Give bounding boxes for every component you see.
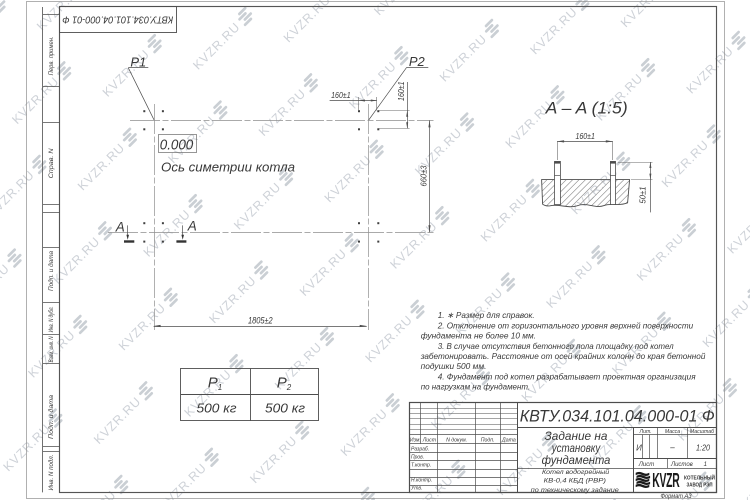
svg-text:500 кг: 500 кг (265, 401, 306, 416)
svg-text:Лит.: Лит. (639, 429, 652, 435)
svg-text:Котел водогрейный: Котел водогрейный (542, 468, 609, 476)
svg-text:A – A (1:5): A – A (1:5) (545, 99, 628, 118)
svg-text:1:20: 1:20 (696, 444, 710, 453)
svg-text:фундамента: фундамента (542, 453, 611, 467)
svg-text:KVZR: KVZR (652, 471, 680, 492)
svg-text:КВТУ.034.101.04.000-01 Ф: КВТУ.034.101.04.000-01 Ф (62, 13, 173, 24)
svg-text:660±3: 660±3 (418, 165, 428, 186)
svg-text:160±1: 160±1 (331, 90, 351, 100)
svg-text:Изм.: Изм. (410, 438, 421, 444)
svg-text:1805±2: 1805±2 (248, 315, 273, 325)
svg-text:A: A (115, 220, 125, 235)
svg-text:подушки 500 мм.: подушки 500 мм. (421, 361, 487, 371)
svg-text:0.000: 0.000 (160, 137, 194, 153)
svg-text:по техническому задание: по техническому задание (531, 486, 619, 494)
svg-text:1. ∗ Размер для справок.: 1. ∗ Размер для справок. (438, 310, 535, 320)
svg-text:Н.контр.: Н.контр. (411, 478, 432, 484)
svg-text:3. В случае отсутствия бетонно: 3. В случае отсутствия бетонного пола пл… (438, 341, 674, 351)
svg-text:фундамента не более 10 мм.: фундамента не более 10 мм. (421, 331, 536, 341)
svg-text:И: И (636, 444, 642, 453)
svg-text:Листов: Листов (670, 462, 693, 468)
svg-text:КОТЕЛЬНЫЙ: КОТЕЛЬНЫЙ (684, 474, 715, 482)
svg-text:Т.контр.: Т.контр. (411, 463, 431, 469)
svg-text:N докум.: N докум. (446, 438, 467, 444)
svg-text:Масса: Масса (665, 429, 680, 435)
svg-text:4. Фундамент под котел разраба: 4. Фундамент под котел разрабатывает про… (438, 371, 696, 381)
svg-text:1: 1 (704, 462, 707, 468)
svg-text:Подп.: Подп. (481, 438, 495, 444)
svg-text:ЗАВОД РЭП: ЗАВОД РЭП (687, 483, 713, 489)
svg-text:Разраб.: Разраб. (411, 446, 429, 452)
svg-text:Формат А3: Формат А3 (661, 493, 692, 500)
svg-text:Перв. примен.: Перв. примен. (49, 36, 55, 75)
svg-text:забетонировать. Расстояние от: забетонировать. Расстояние от осей крайн… (420, 351, 706, 361)
svg-text:50±1: 50±1 (637, 187, 647, 204)
svg-text:–: – (669, 443, 675, 452)
svg-text:P2: P2 (409, 54, 426, 69)
svg-text:Лист: Лист (422, 438, 437, 444)
svg-text:Инв. N подл.: Инв. N подл. (49, 455, 55, 491)
svg-text:Лист: Лист (638, 462, 654, 468)
svg-text:Масштаб: Масштаб (690, 429, 715, 435)
svg-text:КВТУ.034.101.04.000-01 Ф: КВТУ.034.101.04.000-01 Ф (520, 407, 715, 426)
svg-text:по нагрузкам на фундамент.: по нагрузкам на фундамент. (421, 382, 531, 392)
svg-text:160±1: 160±1 (396, 81, 406, 101)
svg-text:Инв. N дубл.: Инв. N дубл. (49, 306, 55, 332)
svg-text:P1: P1 (130, 54, 146, 69)
svg-text:КВ-0,4 КБД (РВР): КВ-0,4 КБД (РВР) (544, 477, 606, 484)
svg-text:Подп. и дата: Подп. и дата (49, 250, 55, 291)
svg-text:Утв.: Утв. (411, 486, 422, 492)
svg-text:160±1: 160±1 (575, 131, 595, 141)
svg-text:A: A (187, 219, 197, 234)
svg-text:Пров.: Пров. (411, 455, 424, 461)
svg-text:Взам. инв. N: Взам. инв. N (49, 336, 55, 362)
svg-text:2. Отклонение от горизонтально: 2. Отклонение от горизонтального уровня … (437, 320, 694, 330)
svg-text:Справ. N: Справ. N (49, 148, 55, 179)
svg-text:500 кг: 500 кг (197, 401, 238, 416)
svg-text:Подп. и дата: Подп. и дата (49, 394, 55, 439)
svg-text:Ось симетрии котла: Ось симетрии котла (161, 161, 295, 175)
svg-text:Дата: Дата (501, 438, 516, 444)
